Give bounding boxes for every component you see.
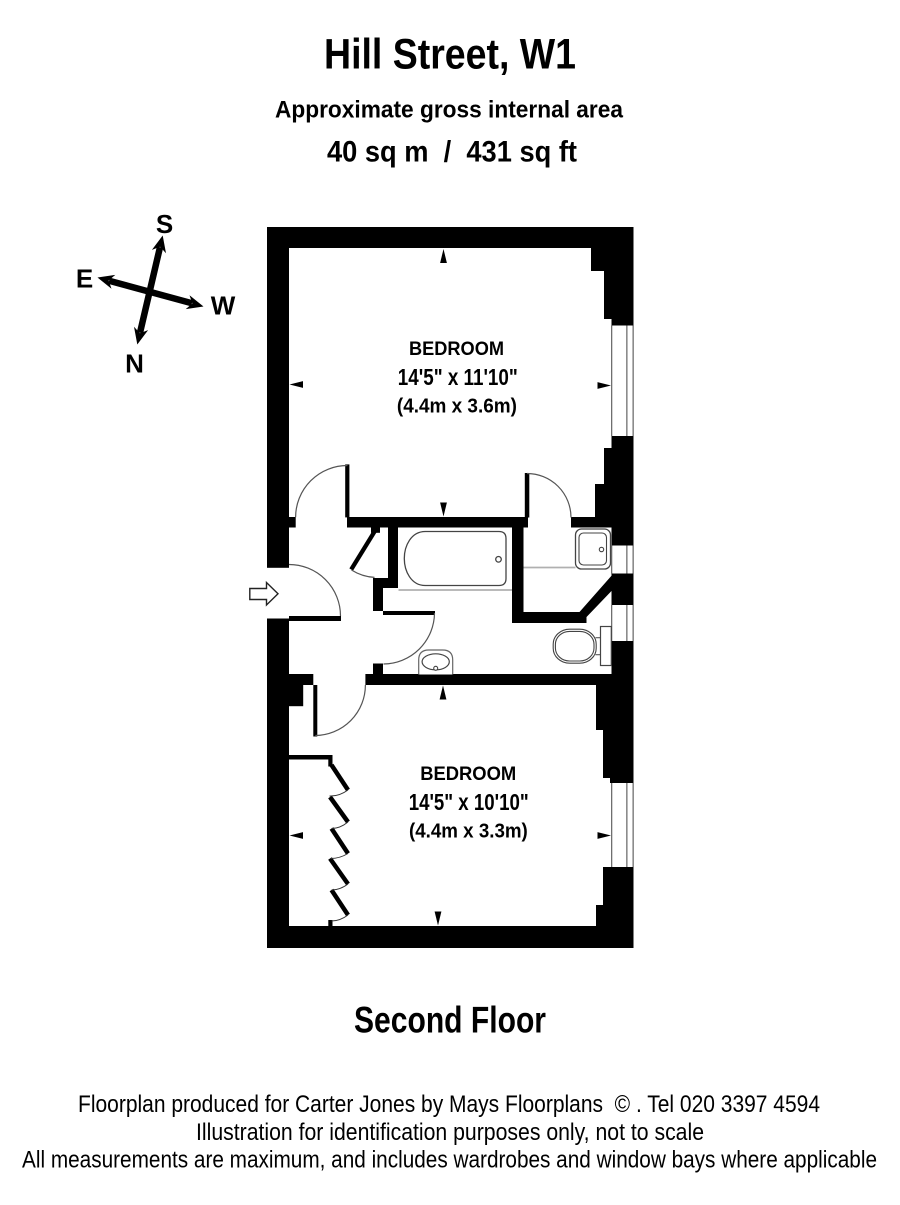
svg-text:(4.4m x 3.6m): (4.4m x 3.6m) <box>397 396 517 418</box>
svg-text:All measurements are maximum,: All measurements are maximum, and includ… <box>22 1148 877 1174</box>
svg-text:E: E <box>76 264 93 294</box>
svg-text:W: W <box>211 291 236 321</box>
svg-text:S: S <box>156 209 173 239</box>
svg-text:14'5" x 10'10": 14'5" x 10'10" <box>409 789 529 815</box>
svg-text:BEDROOM: BEDROOM <box>409 338 504 360</box>
svg-text:Illustration for identificatio: Illustration for identification purposes… <box>196 1120 704 1146</box>
svg-text:Second Floor: Second Floor <box>354 999 546 1040</box>
svg-text:Approximate gross internal are: Approximate gross internal area <box>275 97 623 124</box>
svg-text:14'5" x 11'10": 14'5" x 11'10" <box>398 364 518 390</box>
svg-text:(4.4m x 3.3m): (4.4m x 3.3m) <box>409 821 528 843</box>
svg-text:Floorplan produced for Carter: Floorplan produced for Carter Jones by M… <box>78 1092 820 1118</box>
svg-text:BEDROOM: BEDROOM <box>420 763 516 785</box>
svg-text:Hill Street, W1: Hill Street, W1 <box>324 31 576 79</box>
svg-text:N: N <box>125 349 144 379</box>
svg-text:40 sq m / 431 sq ft: 40 sq m / 431 sq ft <box>327 136 577 169</box>
